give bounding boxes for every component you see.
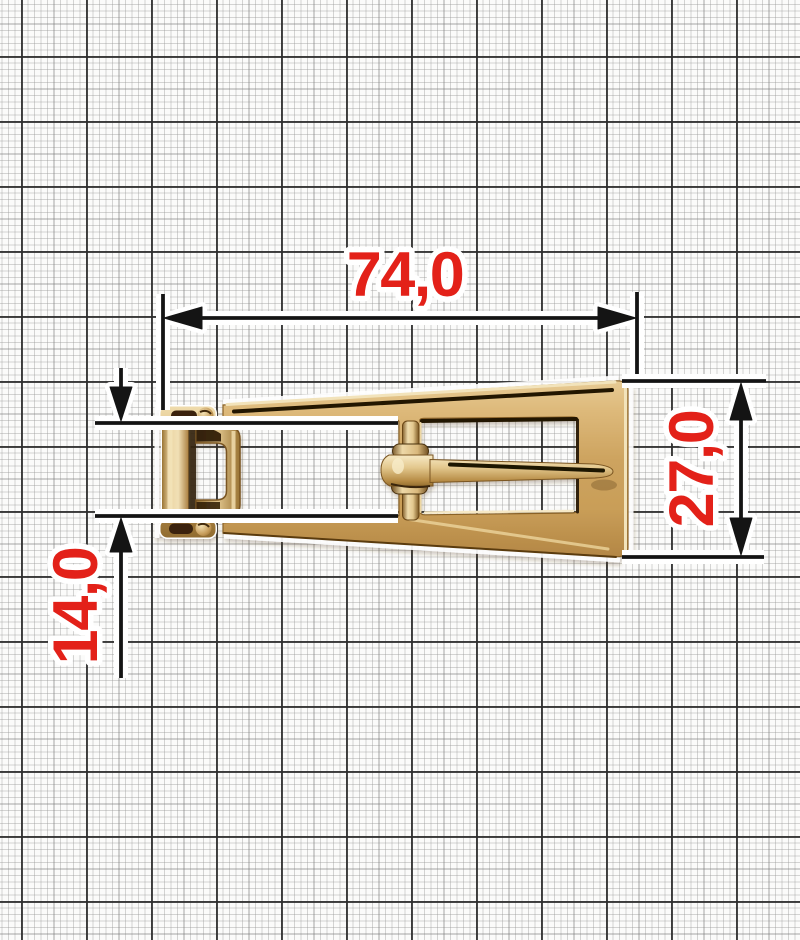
pin-head — [381, 455, 433, 486]
loop-left-bar — [162, 424, 189, 517]
dimension-width-label: 74,0 — [347, 240, 464, 310]
dimension-height: 27,0 — [622, 381, 766, 557]
figure-overlay: 74,0 27,0 — [0, 0, 800, 940]
buckle-photo — [157, 378, 631, 560]
dimension-loop-height-label: 14,0 — [41, 548, 111, 665]
dimension-height-label: 27,0 — [657, 411, 727, 528]
crease-line — [422, 419, 576, 421]
pin-highlight — [392, 458, 404, 474]
pin-tip-shadow — [591, 480, 617, 491]
loop-shadow-slot — [189, 426, 197, 515]
screenshot-root: 74,0 27,0 — [0, 0, 800, 940]
hinge-shadow — [169, 524, 193, 535]
highlight-line — [425, 511, 573, 513]
